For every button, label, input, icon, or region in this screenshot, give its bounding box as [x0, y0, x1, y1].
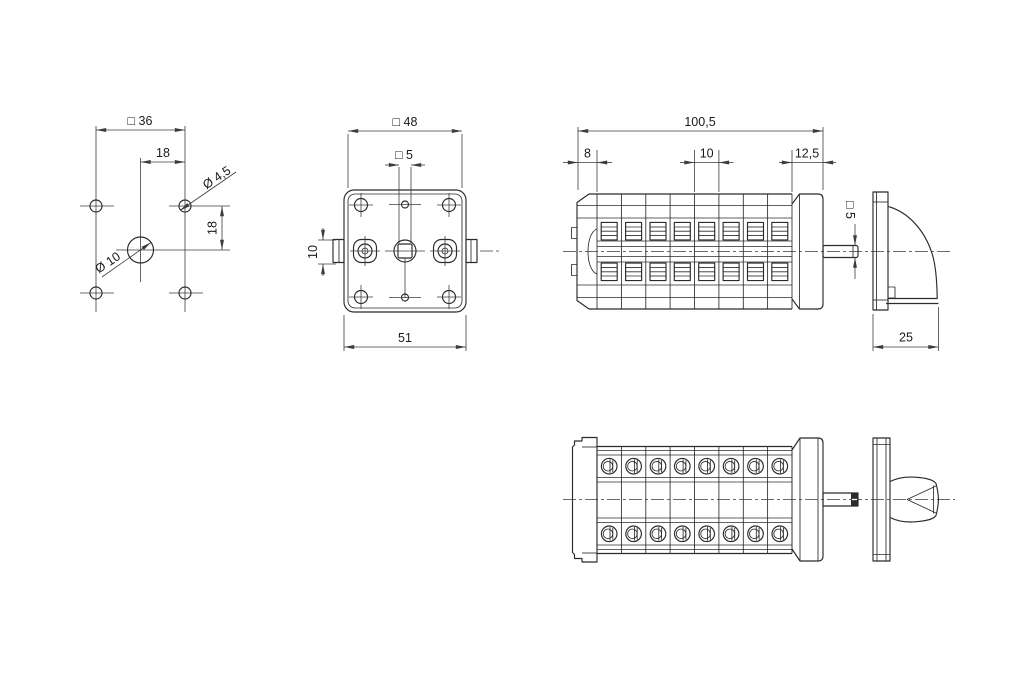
dim-label-shaft-hole-square: □ 5	[395, 148, 413, 162]
dim-label-hole-offset-h: 18	[156, 146, 170, 160]
dim-label-overall-length: 100,5	[684, 115, 715, 129]
cam-switch-dimensional-drawing: □ 36 18 18 Ø 4,5 Ø 10	[0, 0, 1024, 683]
dim-label-overall-width: 51	[398, 331, 412, 345]
dim-label-side-tab-height: 10	[306, 245, 320, 259]
dim-label-shaft-square: □ 5	[843, 201, 857, 219]
dim-label-handle-depth: 25	[899, 331, 913, 345]
dim-label-module-pitch: 10	[700, 147, 714, 161]
dim-label-face-square: □ 48	[393, 115, 418, 129]
dim-label-front-flange-depth: 8	[584, 147, 591, 161]
dim-label-hole-offset-v: 18	[206, 221, 220, 235]
dim-label-mounting-plate-depth: 12,5	[795, 147, 819, 161]
dim-label-pattern-square: □ 36	[128, 114, 153, 128]
technical-drawing-page: □ 36 18 18 Ø 4,5 Ø 10	[0, 0, 1024, 683]
background	[0, 0, 1024, 683]
